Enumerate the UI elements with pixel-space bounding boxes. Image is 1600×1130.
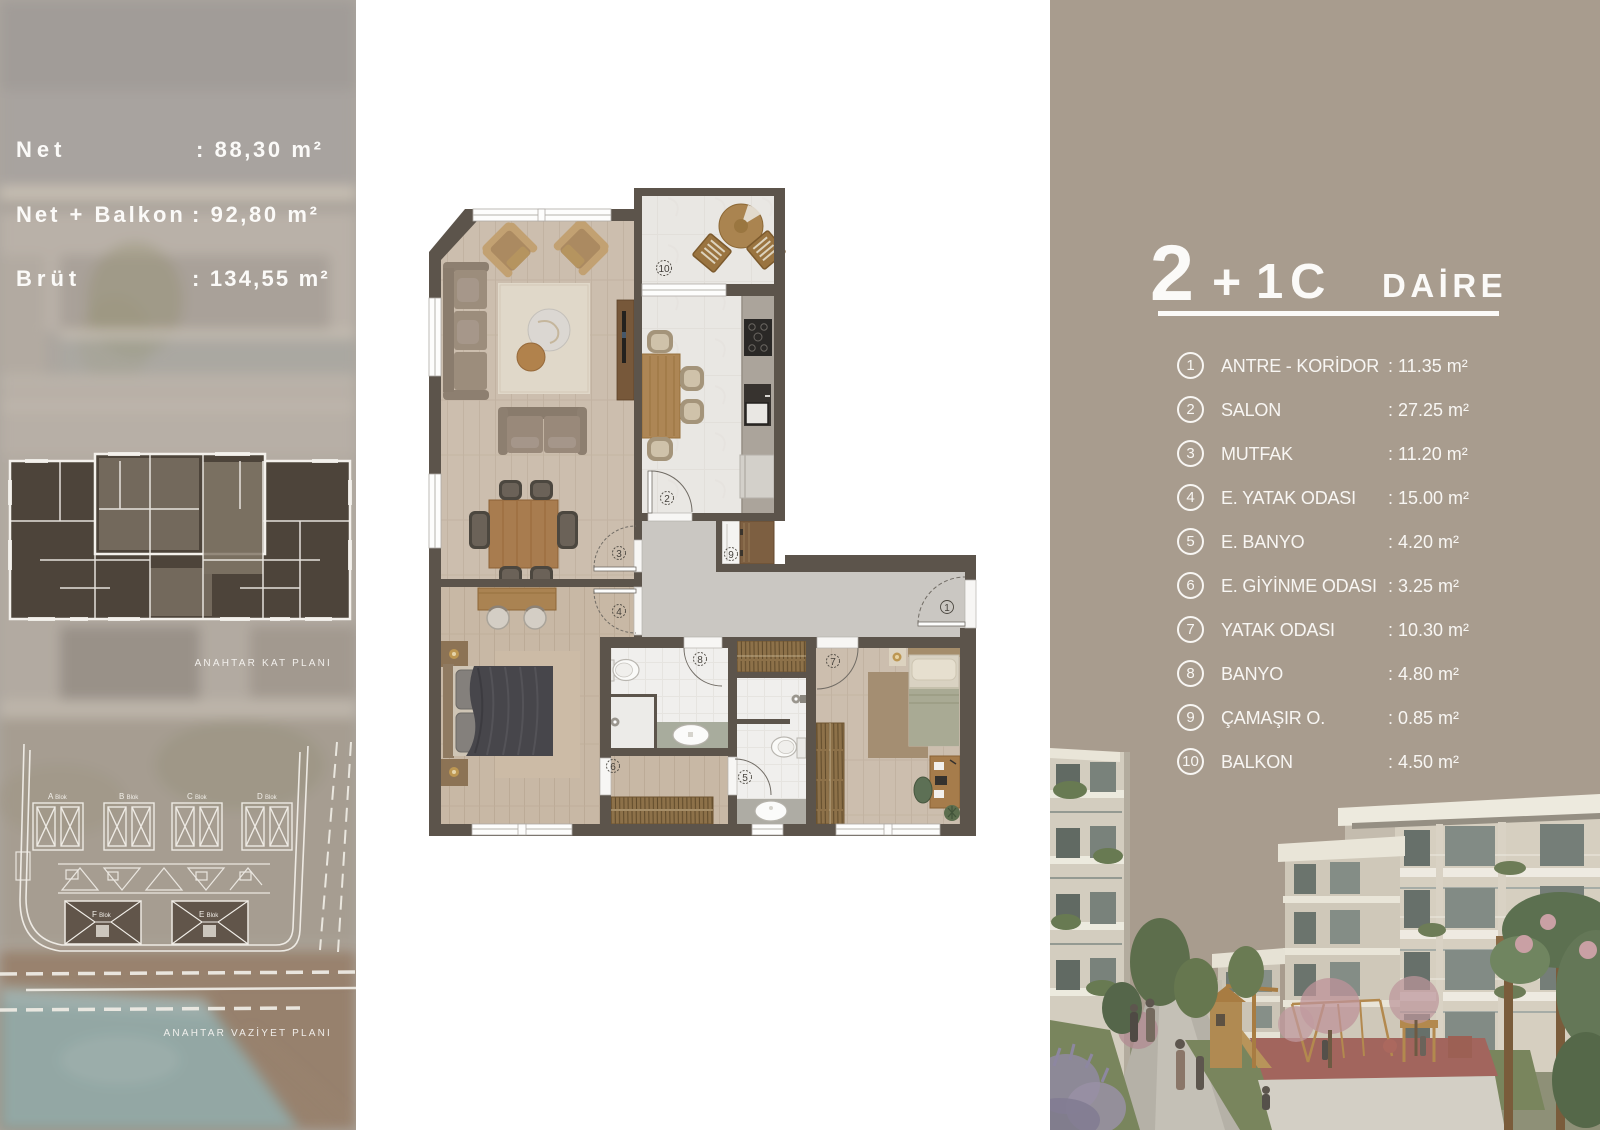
- svg-text:7: 7: [830, 657, 836, 668]
- svg-text:4: 4: [616, 607, 622, 618]
- svg-text:8: 8: [697, 655, 703, 666]
- svg-text:2: 2: [664, 494, 670, 505]
- svg-text:10: 10: [658, 264, 670, 275]
- svg-text:9: 9: [728, 550, 734, 561]
- svg-text:1: 1: [944, 603, 950, 614]
- svg-text:3: 3: [616, 549, 622, 560]
- svg-text:6: 6: [610, 762, 616, 773]
- svg-text:5: 5: [742, 773, 748, 784]
